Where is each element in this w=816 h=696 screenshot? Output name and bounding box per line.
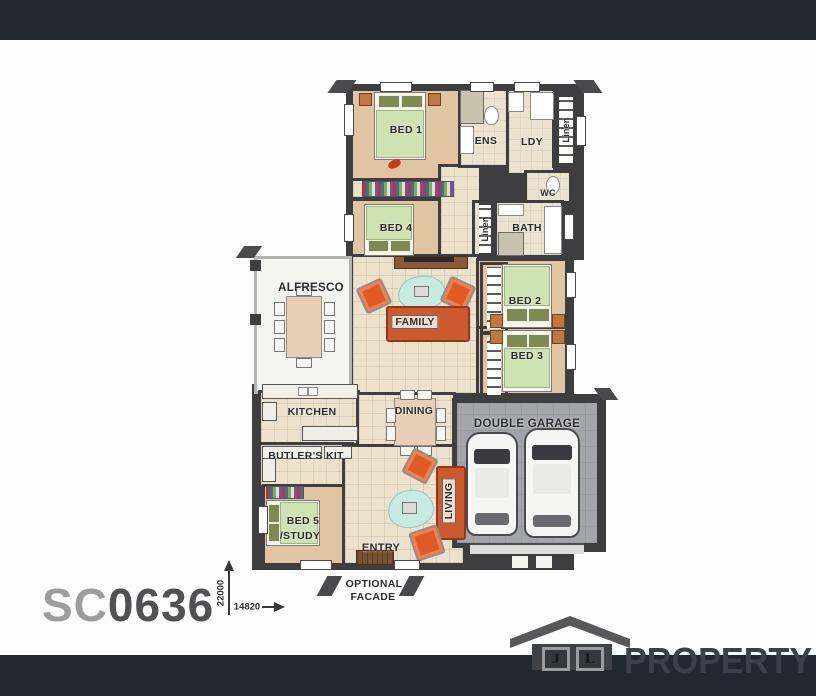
room-label-family: FAMILY: [391, 315, 438, 329]
room-label-linen-mid: Linen: [480, 217, 490, 242]
sink-icon: [298, 387, 308, 396]
bedside-table: [552, 330, 565, 344]
pillow: [401, 95, 423, 108]
car-rear-window: [475, 513, 509, 525]
plan-code: SC0636: [42, 582, 214, 628]
room-label-bed1: BED 1: [390, 124, 422, 136]
kitchen-island: [302, 426, 358, 441]
laundry-tub: [508, 92, 524, 112]
pillow: [368, 240, 389, 252]
vanity-icon: [460, 126, 474, 154]
alfresco-post: [250, 260, 261, 271]
facade-label-line2: FACADE: [351, 591, 396, 603]
room-label-kitchen: KITCHEN: [288, 406, 337, 418]
room-label-double-garage: DOUBLE GARAGE: [474, 418, 580, 430]
room-label-alfresco: ALFRESCO: [278, 282, 344, 294]
dimension-arrow-right: [274, 602, 285, 612]
room-label-dining: DINING: [395, 405, 434, 417]
window: [344, 214, 354, 242]
chair-icon: [417, 390, 432, 400]
laundry-bench: [530, 92, 554, 120]
fridge-icon: [262, 402, 277, 421]
pillow: [268, 504, 280, 523]
coffee-table: [414, 286, 429, 297]
window: [566, 344, 576, 370]
pillow: [378, 95, 400, 108]
facade-block: [317, 576, 343, 596]
room-label-bed5: BED 5: [287, 515, 319, 527]
chair-icon: [274, 302, 285, 316]
bedside-table: [490, 330, 503, 344]
porch-pier: [534, 554, 554, 570]
garage-door-opening: [470, 543, 584, 554]
room-label-wc: WC: [540, 188, 555, 198]
outdoor-table: [286, 296, 322, 358]
room-label-linen-top: Linen: [561, 118, 571, 143]
pillow: [390, 240, 411, 252]
dimension-line-horizontal: [262, 606, 274, 608]
car-icon: [466, 432, 518, 536]
facade-label-line1: OPTIONAL: [346, 578, 403, 590]
car-windshield: [474, 449, 510, 464]
shower-icon: [498, 232, 524, 256]
car-roof: [475, 468, 509, 498]
coffee-table: [402, 502, 417, 514]
window: [470, 82, 494, 92]
chair-icon: [386, 426, 396, 441]
room-label-butlers-kit: BUTLER'S KIT: [268, 450, 344, 462]
window: [514, 82, 540, 92]
dimension-line-vertical: [228, 571, 230, 615]
entry-door-opening: [394, 560, 420, 570]
bedside-table: [428, 93, 441, 106]
room-label-bed2: BED 2: [509, 295, 541, 307]
dimension-depth: 22000: [216, 580, 227, 606]
bedside-table: [552, 314, 565, 328]
room-label-living: LIVING: [442, 479, 456, 524]
pillow: [268, 523, 280, 542]
alfresco-post: [250, 314, 261, 325]
tv-icon: [404, 257, 454, 262]
room-label-bed4: BED 4: [380, 222, 412, 234]
chair-icon: [436, 426, 446, 441]
toilet-icon: [484, 106, 499, 125]
pillow: [528, 334, 550, 348]
car-icon: [524, 428, 580, 538]
pillow: [506, 308, 528, 322]
pillow: [528, 308, 550, 322]
chair-icon: [324, 302, 335, 316]
sink-icon: [308, 387, 318, 396]
room-label-bed3: BED 3: [511, 350, 543, 362]
chair-icon: [274, 320, 285, 334]
pillow: [506, 334, 528, 348]
room-label-entry: ENTRY: [362, 542, 400, 554]
chair-icon: [400, 390, 415, 400]
brand-name: PROPERTY: [624, 643, 812, 679]
chair-icon: [274, 338, 285, 352]
window: [344, 104, 354, 136]
chair-icon: [324, 320, 335, 334]
chair-icon: [296, 358, 312, 368]
window: [576, 116, 586, 146]
logo-initial-left: J: [542, 647, 570, 671]
room-label-bath: BATH: [512, 222, 542, 234]
chair-icon: [324, 338, 335, 352]
window: [300, 560, 332, 570]
room-label-study: /STUDY: [280, 530, 320, 542]
window: [564, 214, 574, 240]
plan-code-number: 0636: [108, 579, 214, 631]
pantry-shelves: [266, 486, 304, 499]
vanity-icon: [498, 204, 524, 216]
chair-icon: [436, 408, 446, 423]
bathtub-icon: [544, 206, 562, 254]
dimension-width: 14820: [234, 602, 260, 613]
car-windshield: [532, 445, 572, 460]
window: [566, 272, 576, 298]
logo-initial-right: L: [576, 647, 604, 671]
room-label-ens: ENS: [475, 135, 498, 147]
window: [380, 82, 412, 92]
floor-plan-page: BED 1 ENS LDY Linen BED 4 Linen WC BATH …: [0, 0, 816, 696]
logo-house-body: J L: [532, 644, 612, 670]
shower-icon: [460, 90, 484, 124]
window: [258, 506, 268, 534]
room-label-ldy: LDY: [521, 136, 543, 148]
car-roof: [533, 464, 571, 494]
porch-pier: [510, 554, 530, 570]
plan-code-prefix: SC: [42, 579, 108, 631]
bedside-table: [359, 93, 372, 106]
dimension-arrow-up: [224, 560, 234, 571]
bedside-table: [490, 314, 503, 328]
wardrobe-clothes: [362, 181, 454, 197]
car-rear-window: [533, 515, 571, 527]
